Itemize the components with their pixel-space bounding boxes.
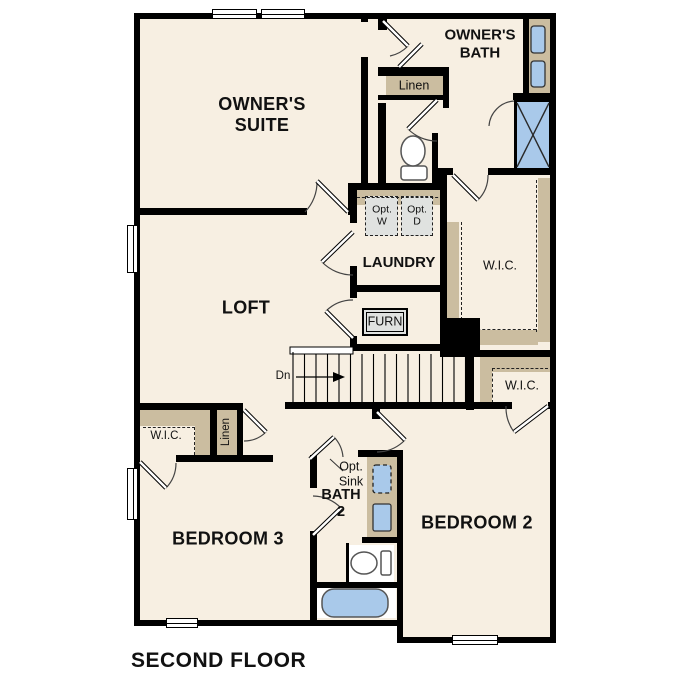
room-label-owners-suite: OWNER'S SUITE — [202, 94, 322, 136]
window — [127, 225, 138, 273]
room-label-bath2: BATH 2 — [316, 487, 366, 521]
plan-title: SECOND FLOOR — [131, 649, 306, 673]
label-wic-owners: W.I.C. — [483, 259, 517, 274]
window-mullion — [453, 640, 497, 641]
window — [212, 9, 257, 19]
label-furnace: FURN — [368, 315, 403, 330]
room-label-loft: LOFT — [222, 297, 270, 318]
room-label-bedroom3: BEDROOM 3 — [172, 528, 284, 549]
floor-plan: OWNER'S SUITE OWNER'S BATH Linen Opt. W … — [0, 0, 687, 687]
room-label-owners-bath: OWNER'S BATH — [433, 26, 528, 61]
room-label-bedroom2: BEDROOM 2 — [421, 512, 533, 533]
window-mullion — [213, 14, 256, 15]
window — [127, 468, 138, 520]
room-label-laundry: LAUNDRY — [363, 254, 436, 272]
label-opt-dryer: Opt. D — [403, 204, 431, 229]
label-linen-upper: Linen — [399, 79, 430, 94]
window — [452, 635, 498, 645]
windows — [0, 0, 687, 687]
label-wic-bedroom3: W.I.C. — [150, 430, 181, 444]
label-stairs-down: Dn — [276, 370, 291, 384]
label-linen-hall: Linen — [220, 418, 234, 446]
label-opt-washer: Opt. W — [368, 204, 396, 229]
window-mullion — [133, 469, 134, 519]
window-mullion — [262, 14, 304, 15]
window — [166, 618, 198, 628]
window — [261, 9, 305, 19]
window-mullion — [133, 226, 134, 272]
label-opt-sink: Opt. Sink — [332, 459, 370, 489]
label-wic-bedroom2: W.I.C. — [505, 379, 539, 394]
window-mullion — [167, 623, 197, 624]
